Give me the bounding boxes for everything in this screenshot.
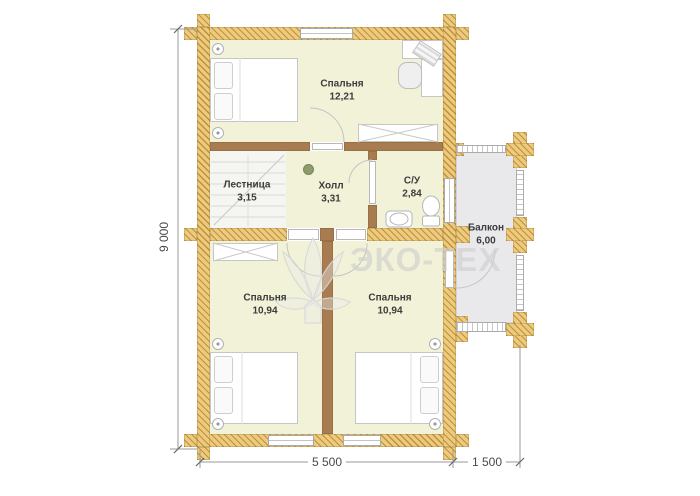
room-label-bathroom: С/У 2,84 (402, 176, 421, 201)
room-name: Спальня (320, 79, 363, 92)
log-stub (456, 434, 469, 447)
wall-exterior-bottom (197, 434, 456, 447)
pillow (214, 62, 233, 89)
wall-middle-left-segment (210, 228, 287, 241)
wall-lamp-icon (212, 418, 224, 430)
wall-exterior-right (443, 27, 456, 447)
wall-lamp-icon (429, 418, 441, 430)
room-name: С/У (402, 176, 421, 189)
door-bedroom-left (288, 229, 319, 240)
room-name: Балкон (468, 223, 504, 236)
wall-lamp-icon (212, 338, 224, 350)
door-bathroom (369, 161, 376, 204)
room-area: 3,31 (318, 193, 343, 206)
door-bedroom-top (312, 143, 343, 150)
log-stub (443, 447, 456, 460)
pillow (420, 356, 439, 383)
room-label-stairs: Лестница 3,15 (224, 180, 271, 205)
floor-plan-canvas: ЭКО-ТЕХ Спальня 12,21 Лестница 3,15 Холл… (0, 0, 700, 496)
partition-bedrooms-center (322, 241, 333, 434)
room-name: Лестница (224, 180, 271, 193)
room-name: Спальня (368, 293, 411, 306)
partition-bedroom-hall-left (210, 142, 310, 151)
partition-hall-bathroom-bottom (368, 205, 377, 228)
log-stub (197, 447, 210, 460)
room-name: Спальня (243, 293, 286, 306)
partition-hall-bathroom-top (368, 151, 377, 160)
window-bedroom-right (343, 435, 381, 446)
log-stub (184, 434, 197, 447)
room-label-balcony: Балкон 6,00 (468, 223, 504, 248)
room-area: 10,94 (243, 305, 286, 318)
dimension-balcony-width: 1 500 (468, 455, 506, 469)
door-bedroom-right (336, 229, 366, 240)
window-bedroom-left (268, 435, 314, 446)
pillow (420, 387, 439, 414)
pillow (214, 93, 233, 120)
partition-bedroom-hall-right (344, 142, 443, 151)
room-label-bedroom-top: Спальня 12,21 (320, 79, 363, 104)
room-label-hall: Холл 3,31 (318, 181, 343, 206)
wardrobe-left-bedroom (213, 243, 278, 261)
balcony-post (506, 228, 534, 241)
balcony-post (506, 143, 534, 156)
balcony-railing-bottom (456, 322, 506, 332)
wall-lamp-icon (212, 127, 224, 139)
room-area: 3,15 (224, 192, 271, 205)
pillow (214, 387, 233, 414)
log-stub (184, 228, 197, 241)
plant-icon (303, 164, 314, 175)
log-stub (184, 27, 197, 40)
wall-middle-right-segment (367, 228, 443, 241)
balcony-post (506, 323, 534, 336)
partition-center-stub (320, 228, 334, 241)
wall-exterior-left (197, 27, 210, 447)
room-area: 12,21 (320, 91, 363, 104)
room-label-bedroom-right: Спальня 10,94 (368, 293, 411, 318)
room-area: 10,94 (368, 305, 411, 318)
chair (398, 62, 422, 89)
room-area: 6,00 (468, 235, 504, 248)
dimension-total-height: 9 000 (157, 218, 171, 256)
balcony-railing-right-lower (516, 255, 524, 311)
balcony-railing-right-upper (516, 170, 524, 216)
log-stub (456, 27, 469, 40)
pillow (214, 356, 233, 383)
room-area: 2,84 (402, 188, 421, 201)
window-bathroom (444, 178, 455, 223)
window-top-bedroom (300, 28, 353, 39)
log-stub (197, 14, 210, 27)
balcony-railing-top (456, 145, 506, 153)
wall-lamp-icon (429, 338, 441, 350)
room-name: Холл (318, 181, 343, 194)
wardrobe-top-bedroom (358, 124, 438, 142)
wall-lamp-icon (212, 43, 224, 55)
room-label-bedroom-left: Спальня 10,94 (243, 293, 286, 318)
log-stub (443, 14, 456, 27)
dimension-main-width: 5 500 (308, 455, 346, 469)
